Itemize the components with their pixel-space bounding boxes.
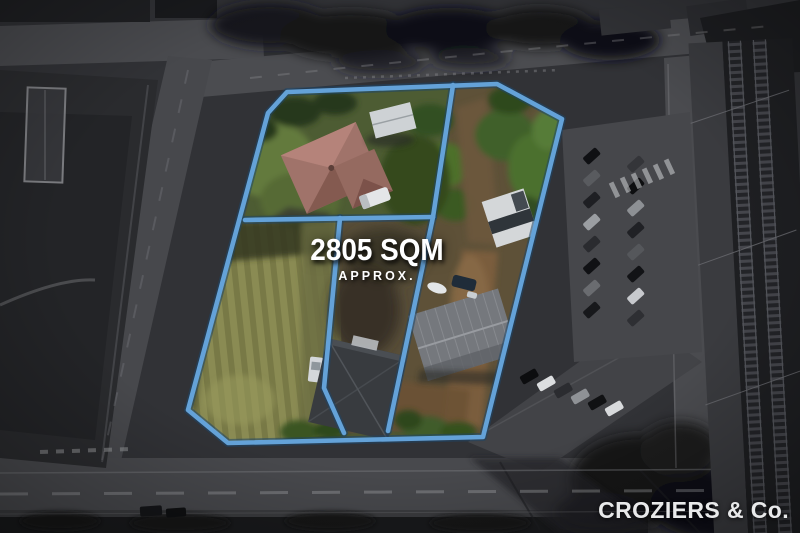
aerial-scene — [0, 0, 800, 533]
agency-watermark: CROZIERS & Co. — [598, 497, 789, 524]
vignette — [0, 0, 800, 533]
aerial-listing-photo: 2805 SQM APPROX. CROZIERS & Co. — [0, 0, 800, 533]
